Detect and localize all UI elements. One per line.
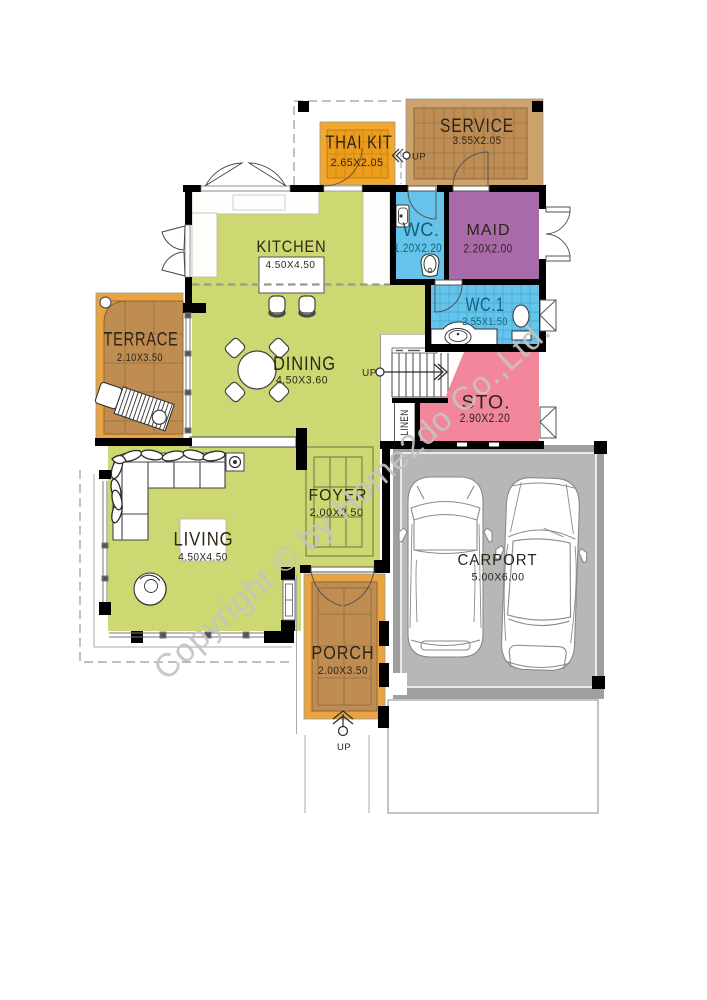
svg-text:TERRACE: TERRACE — [104, 330, 179, 351]
svg-text:2.55X1.50: 2.55X1.50 — [462, 316, 508, 328]
svg-text:4.50X4.50: 4.50X4.50 — [266, 259, 316, 271]
svg-text:2.10X3.50: 2.10X3.50 — [117, 352, 163, 364]
svg-text:4.50X4.50: 4.50X4.50 — [178, 552, 228, 564]
svg-text:PORCH: PORCH — [312, 643, 375, 663]
svg-text:UP: UP — [337, 742, 351, 753]
svg-text:2.00X3.50: 2.00X3.50 — [318, 665, 368, 677]
svg-text:UP: UP — [412, 152, 426, 163]
svg-text:UP: UP — [362, 368, 377, 379]
svg-text:WC.1: WC.1 — [466, 295, 505, 316]
svg-text:THAI KIT: THAI KIT — [326, 132, 393, 153]
svg-text:DINING: DINING — [273, 354, 336, 375]
svg-text:5.00X6.00: 5.00X6.00 — [472, 572, 525, 584]
svg-text:3.55X2.05: 3.55X2.05 — [453, 135, 502, 147]
svg-text:SERVICE: SERVICE — [440, 116, 514, 137]
svg-text:KITCHEN: KITCHEN — [257, 238, 327, 256]
svg-text:2.20X2.00: 2.20X2.00 — [464, 244, 513, 256]
svg-text:2.65X2.05: 2.65X2.05 — [331, 157, 384, 169]
svg-text:4.50X3.60: 4.50X3.60 — [276, 375, 328, 387]
svg-text:LIVING: LIVING — [174, 530, 234, 551]
svg-text:WC.: WC. — [403, 220, 440, 241]
svg-text:CARPORT: CARPORT — [458, 552, 538, 569]
svg-text:1.20X2.20: 1.20X2.20 — [394, 243, 442, 255]
svg-text:MAID: MAID — [467, 222, 511, 239]
